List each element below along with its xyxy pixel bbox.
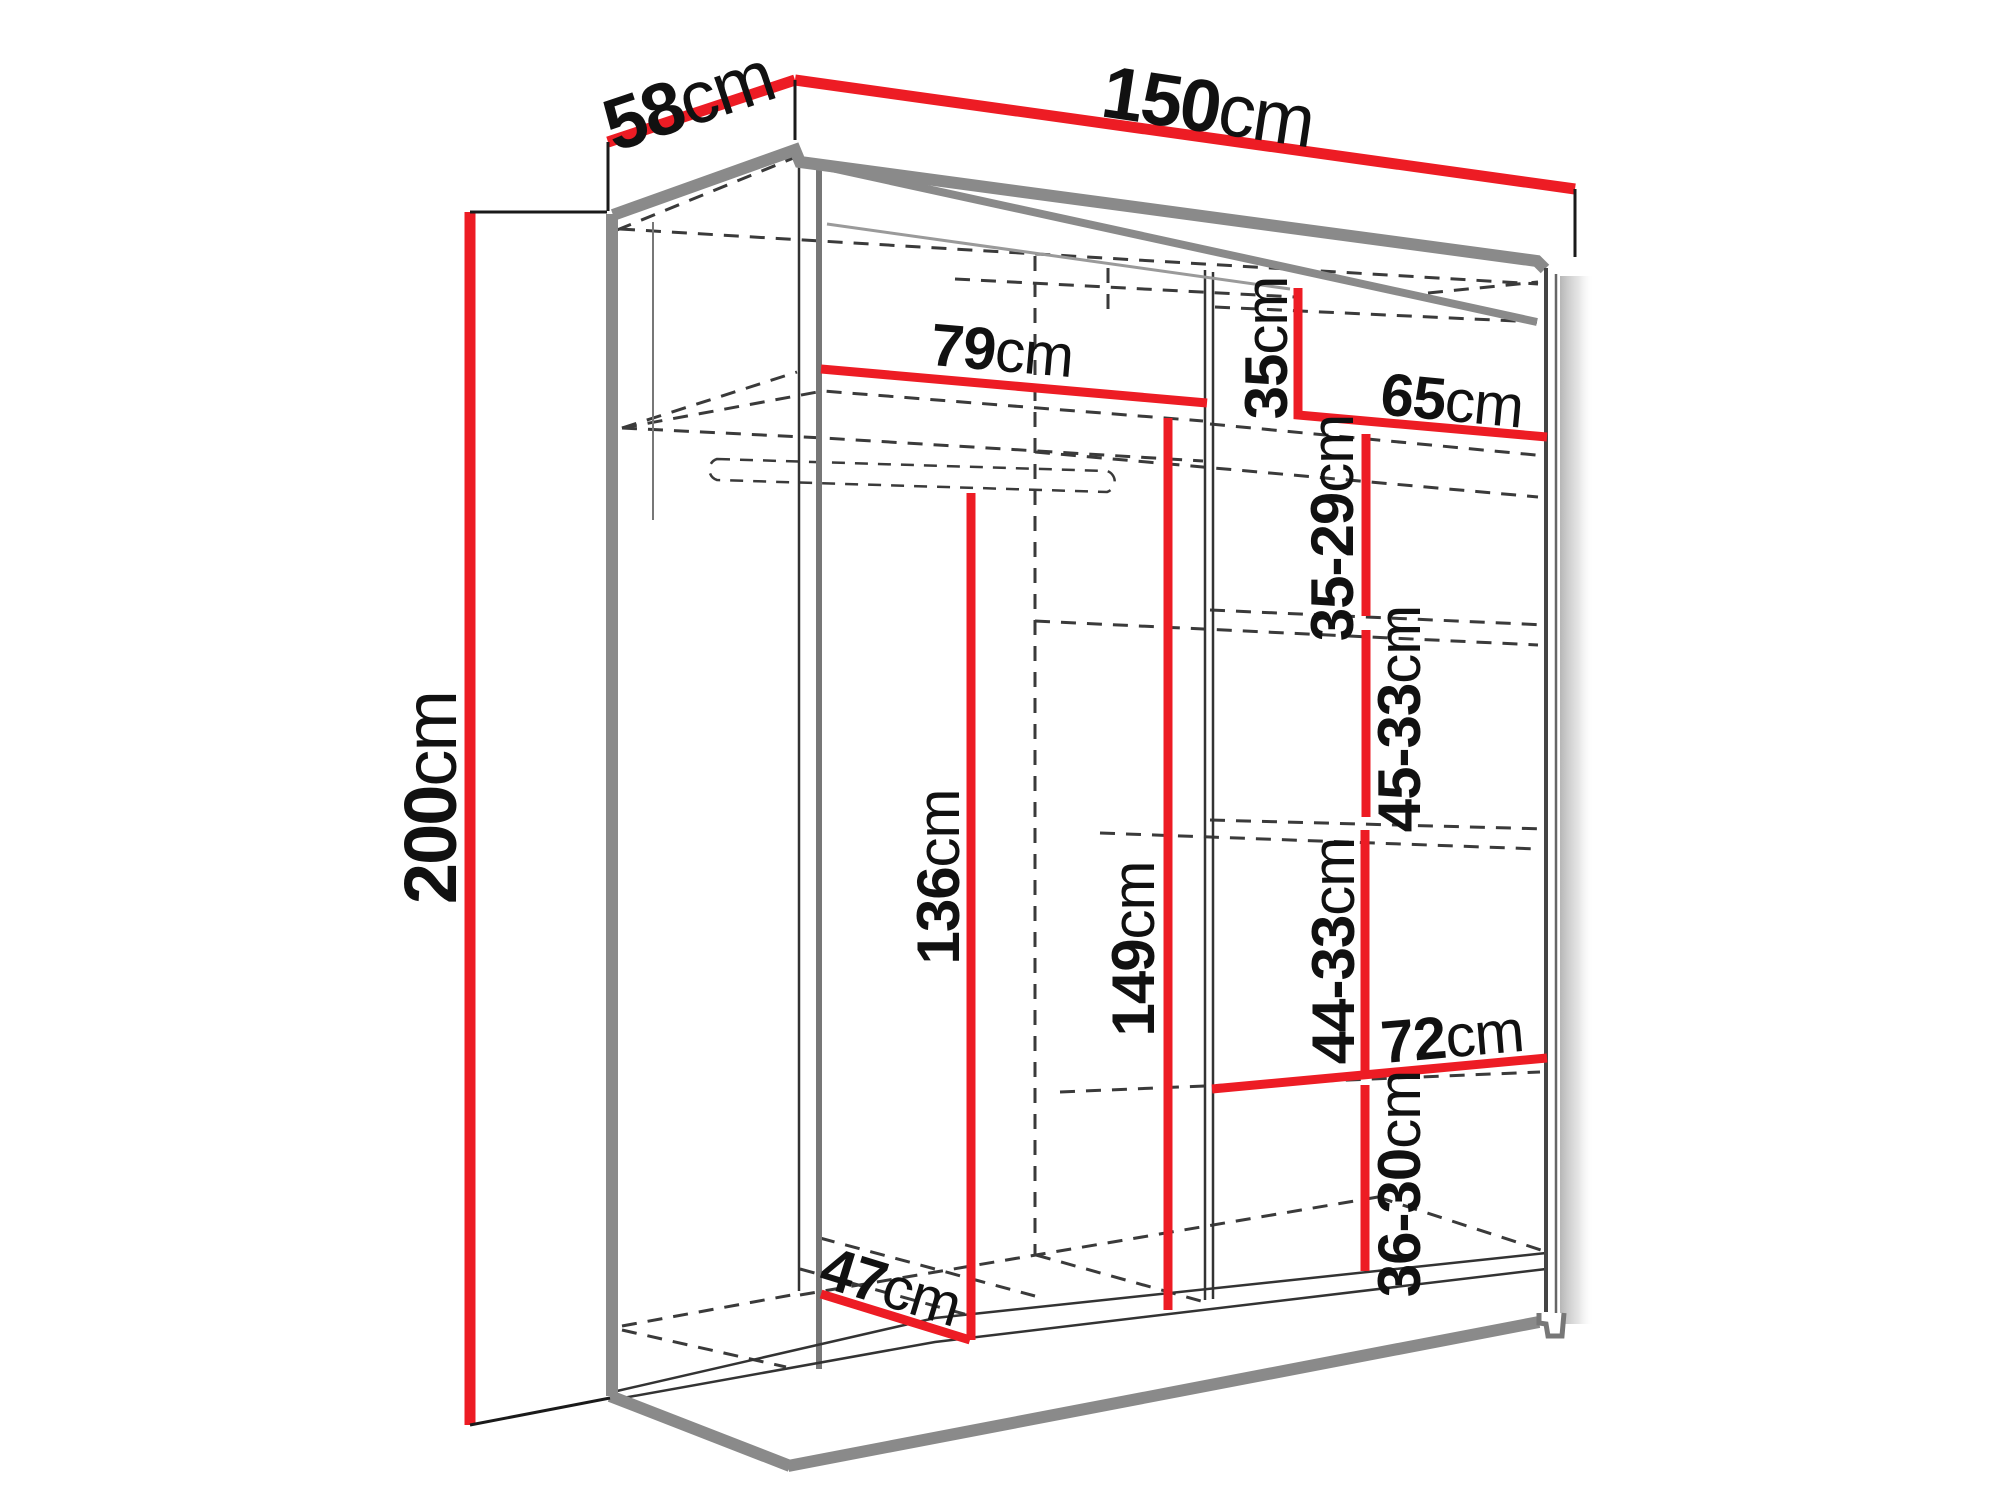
top-shelf-depth-edge-1	[622, 372, 797, 428]
dim-value: 35-29	[1299, 493, 1366, 641]
dim-unit: cm	[1213, 67, 1319, 163]
shelf-2-back-edge	[1035, 621, 1538, 645]
label-gap-3: 44-33cm	[1300, 838, 1367, 1064]
dim-unit: cm	[1442, 996, 1526, 1070]
dim-value: 136	[905, 867, 972, 964]
floor-partition-depth-edge	[1036, 1255, 1208, 1303]
label-width-bottom-right: 72cm	[1378, 996, 1526, 1075]
dim-value: 72	[1378, 1003, 1448, 1075]
ext-line-5	[470, 1398, 610, 1425]
label-left-shelf-width: 79cm	[928, 310, 1076, 389]
label-middle-interior-height: 149cm	[1100, 861, 1167, 1036]
top-shelf-bottom-edge	[622, 428, 1203, 461]
dim-value: 200	[389, 787, 472, 904]
label-gap-1: 35-29cm	[1299, 415, 1366, 641]
label-gap-2: 45-33cm	[1366, 606, 1433, 832]
label-left-interior-height: 136cm	[905, 789, 972, 964]
dim-unit: cm	[1442, 366, 1526, 440]
floor-left-back-edge	[622, 1294, 797, 1326]
dim-value: 150	[1097, 49, 1225, 148]
dim-value: 35	[1233, 355, 1300, 420]
dimension-labels: 58cm 150cm 200cm 79cm 35cm 65cm 35-29cm …	[389, 33, 1527, 1339]
bottom-front-edge	[788, 1322, 1539, 1466]
dim-unit: cm	[992, 316, 1076, 390]
label-height-left: 200cm	[389, 692, 472, 904]
dim-unit: cm	[1233, 277, 1300, 355]
label-depth-top: 58cm	[593, 33, 783, 167]
dim-value: 44-33	[1300, 916, 1367, 1064]
dim-value: 149	[1100, 939, 1167, 1036]
cabinet-shadow	[1560, 276, 1594, 1324]
dim-value: 65	[1378, 360, 1449, 433]
dim-unit: cm	[1299, 415, 1366, 493]
dim-value: 79	[928, 310, 998, 382]
dim-unit: cm	[1300, 838, 1367, 916]
label-width-top: 150cm	[1097, 49, 1319, 162]
dim-unit: cm	[1100, 861, 1167, 939]
right-wall-top-depth-edge	[1428, 282, 1538, 293]
label-interior-depth: 47cm	[813, 1233, 969, 1339]
dim-value: 36-30	[1366, 1149, 1433, 1297]
dim-value: 45-33	[1366, 684, 1433, 832]
bottom-left-edge	[610, 1396, 790, 1466]
label-width-top-right: 65cm	[1378, 360, 1526, 440]
label-gap-4: 36-30cm	[1366, 1071, 1433, 1297]
ceiling-depth-edge-left	[617, 157, 796, 230]
dim-unit: cm	[905, 789, 972, 867]
label-cubby-height: 35cm	[1233, 277, 1300, 420]
shelf-1-back-edge	[1035, 452, 1538, 497]
right-foot	[1539, 1313, 1564, 1336]
wardrobe-dimension-diagram: 58cm 150cm 200cm 79cm 35cm 65cm 35-29cm …	[0, 0, 2000, 1500]
floor-left-depth-edge	[622, 1330, 786, 1367]
diagram-canvas: 58cm 150cm 200cm 79cm 35cm 65cm 35-29cm …	[0, 0, 2000, 1500]
dim-unit: cm	[389, 692, 472, 787]
hanging-rail	[709, 459, 1114, 492]
dim-unit: cm	[1366, 1071, 1433, 1149]
dim-unit: cm	[1366, 606, 1433, 684]
